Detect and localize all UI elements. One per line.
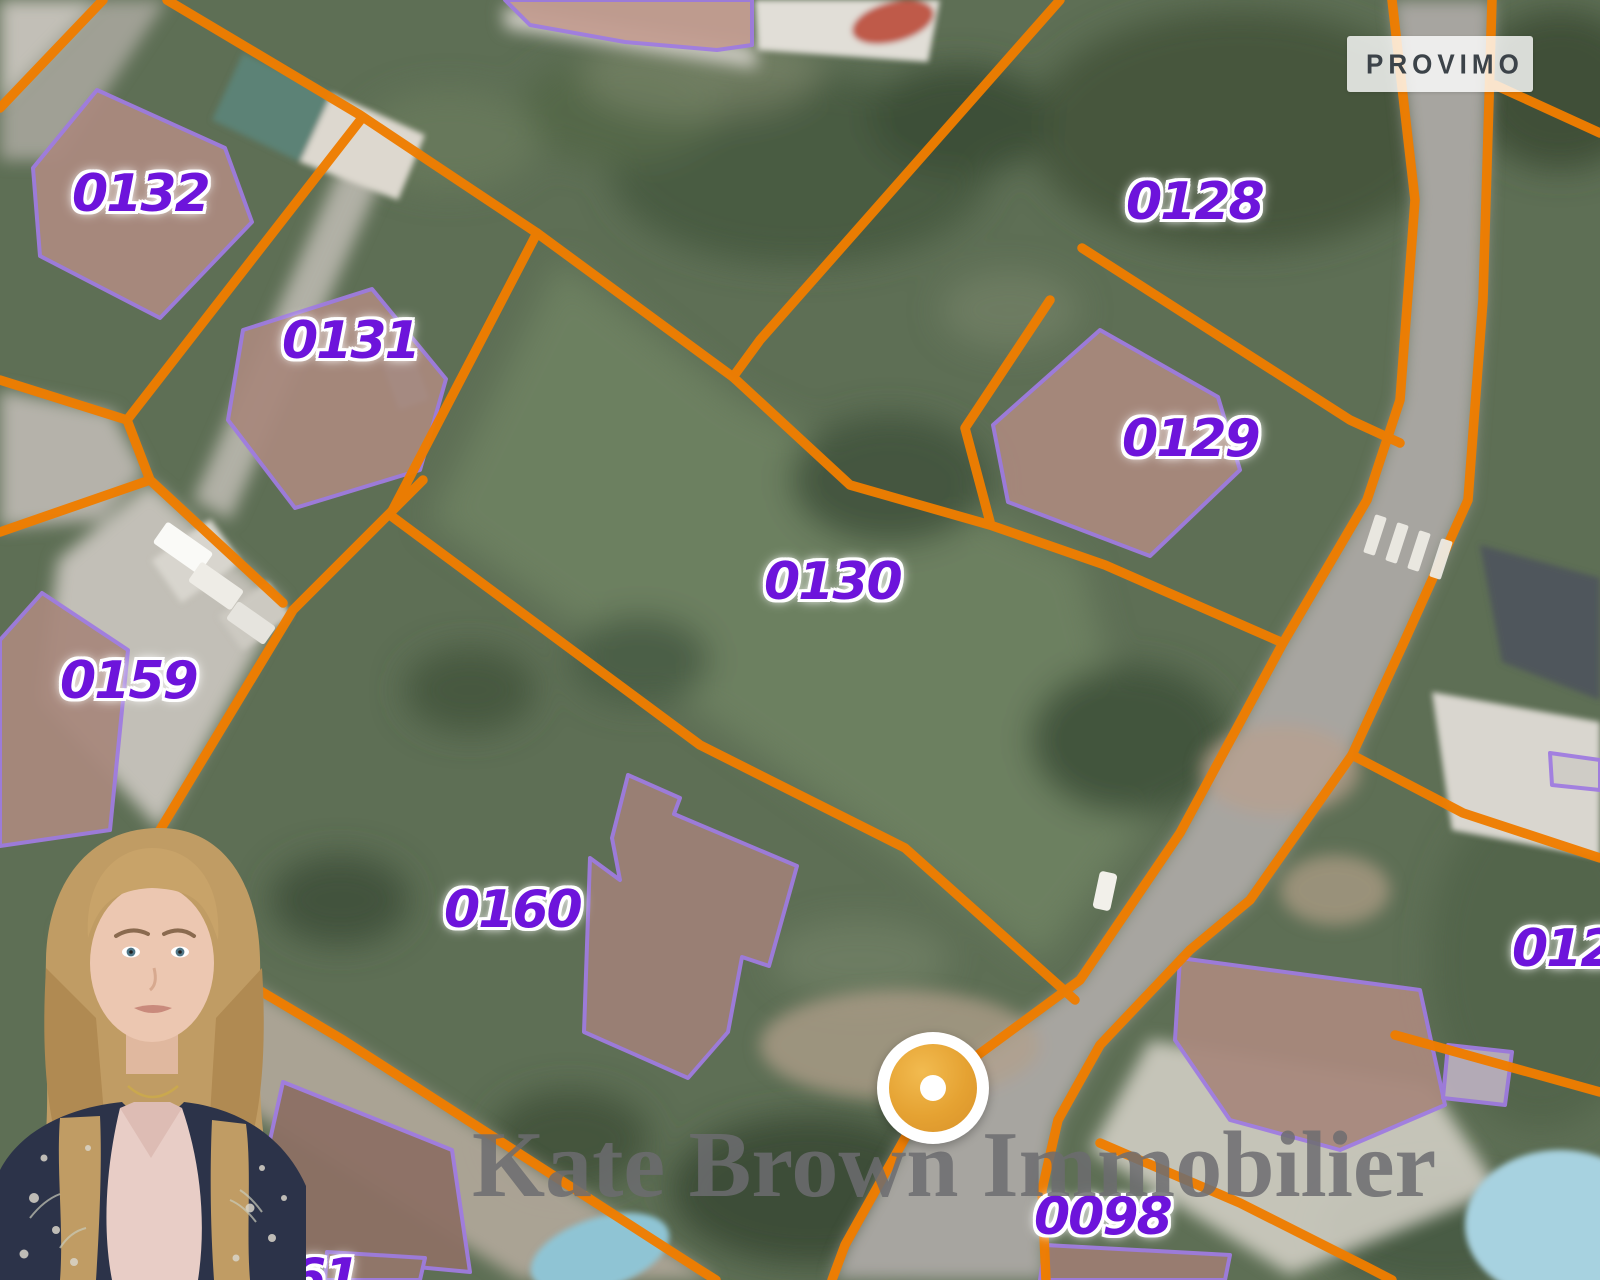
parcel-label-0129: 0129 [1122,413,1259,465]
parcel-label-012-partial: 012 [1512,923,1600,975]
parcel-label-0132: 0132 [72,168,209,220]
parcel-label-0130: 0130 [764,556,901,608]
agent-photo [0,818,312,1280]
parcel-label-0128: 0128 [1126,176,1263,228]
map-canvas[interactable]: 0132 0131 0128 0129 0130 0159 0160 0098 … [0,0,1600,1280]
brand-name: PROVIMO [1366,48,1524,81]
parcel-label-0160: 0160 [444,884,581,936]
parcel-label-0159: 0159 [60,655,197,707]
location-marker[interactable] [877,1032,989,1144]
parcel-label-0131: 0131 [282,315,419,367]
marker-center-dot [920,1075,946,1101]
provimo-logo-badge: PROVIMO [1347,36,1533,92]
